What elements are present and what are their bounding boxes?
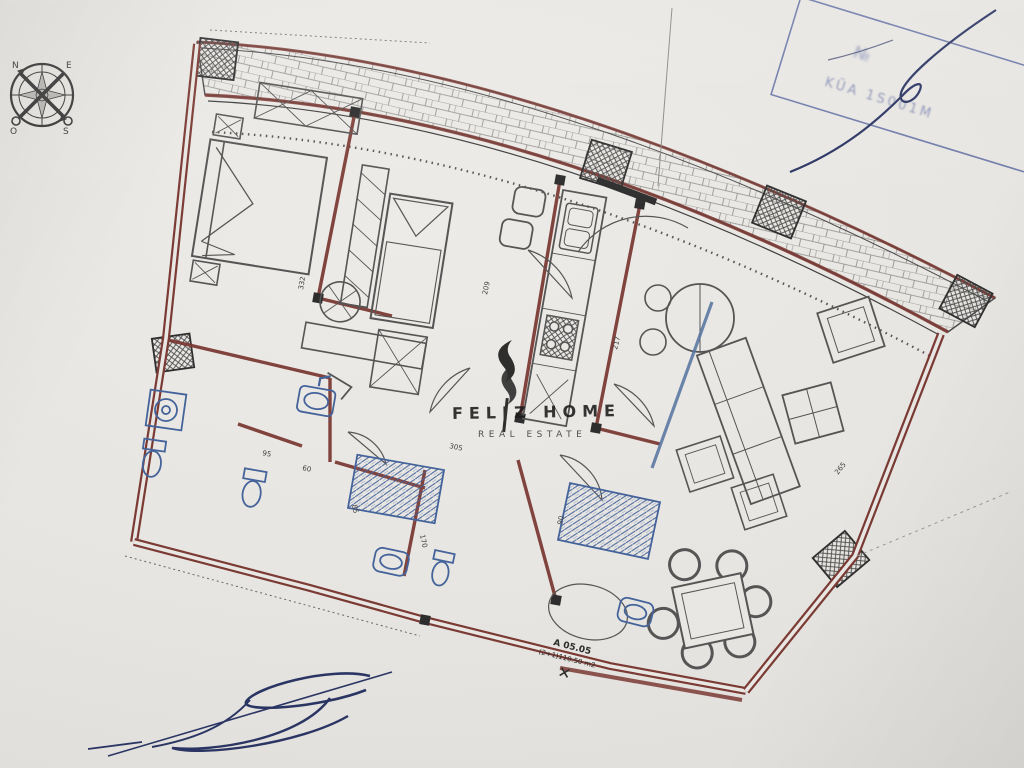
stamp-signature [790, 10, 996, 172]
furniture-dining-set [634, 534, 781, 676]
compass-e: E [66, 61, 72, 71]
hand-signature [88, 672, 392, 756]
dim-label: 170 [418, 534, 429, 549]
dim-label: 60 [302, 464, 312, 474]
floor-plan-drawing: N E S O [0, 0, 1024, 768]
furniture-bedroom2 [328, 165, 456, 395]
dim-label: 95 [262, 449, 272, 459]
dim-label: 85 [350, 504, 360, 514]
dim-label: 305 [449, 442, 464, 453]
furniture-living-room [640, 284, 885, 530]
dim-label: 209 [481, 281, 492, 296]
compass-s: S [63, 127, 69, 137]
watermark-brand: FELIZ HOME [452, 401, 621, 423]
dim-label: 332 [297, 276, 307, 291]
compass-w: O [10, 127, 17, 137]
dim-label: 265 [833, 461, 848, 476]
furniture-master-bedroom [188, 76, 363, 303]
compass-rose-icon: N E S O [10, 61, 73, 137]
compass-n: N [12, 61, 19, 71]
scanned-floor-plan: N E S O [0, 0, 1024, 768]
watermark-tagline: REAL ESTATE [478, 430, 586, 440]
approval-stamp: № KÜA 1S001M [771, 0, 1024, 173]
